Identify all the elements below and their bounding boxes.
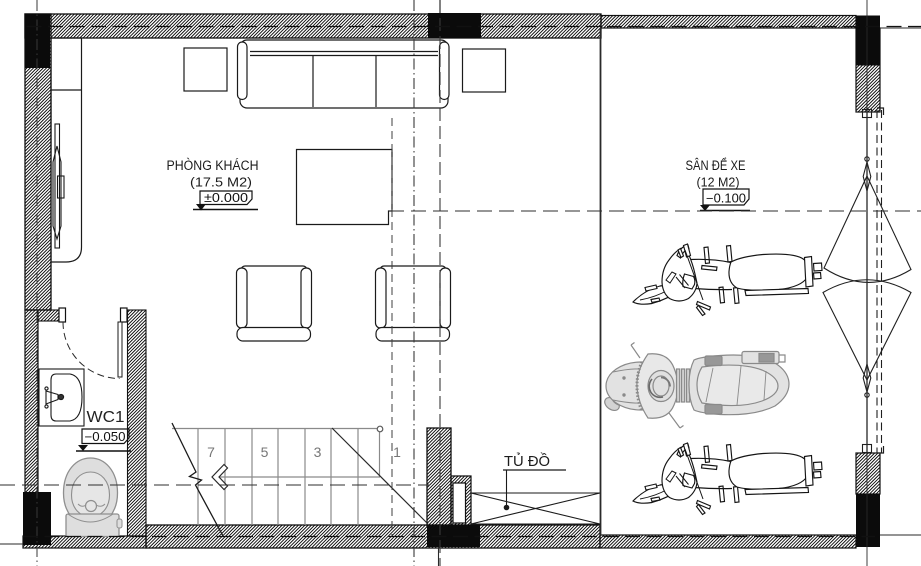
svg-text:TỦ ĐỒ: TỦ ĐỒ [504, 452, 550, 470]
svg-text:1: 1 [393, 444, 401, 460]
svg-text:(17.5 M2): (17.5 M2) [190, 176, 252, 190]
svg-text:±0.000: ±0.000 [204, 191, 248, 205]
svg-text:SÂN ĐỂ XE: SÂN ĐỂ XE [686, 158, 746, 173]
svg-text:(12 M2): (12 M2) [697, 176, 740, 190]
svg-text:−0.100: −0.100 [706, 192, 746, 206]
svg-text:PHÒNG KHÁCH: PHÒNG KHÁCH [167, 158, 259, 173]
svg-text:7: 7 [207, 444, 215, 460]
svg-text:5: 5 [261, 444, 269, 460]
svg-text:−0.050: −0.050 [85, 430, 126, 444]
svg-text:WC1: WC1 [87, 409, 125, 426]
svg-text:3: 3 [314, 444, 322, 460]
